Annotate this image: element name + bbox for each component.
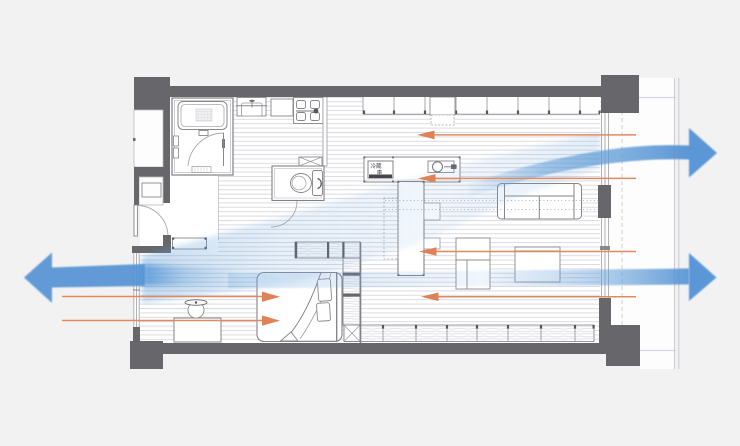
svg-text:冷蔵: 冷蔵 bbox=[371, 162, 383, 170]
